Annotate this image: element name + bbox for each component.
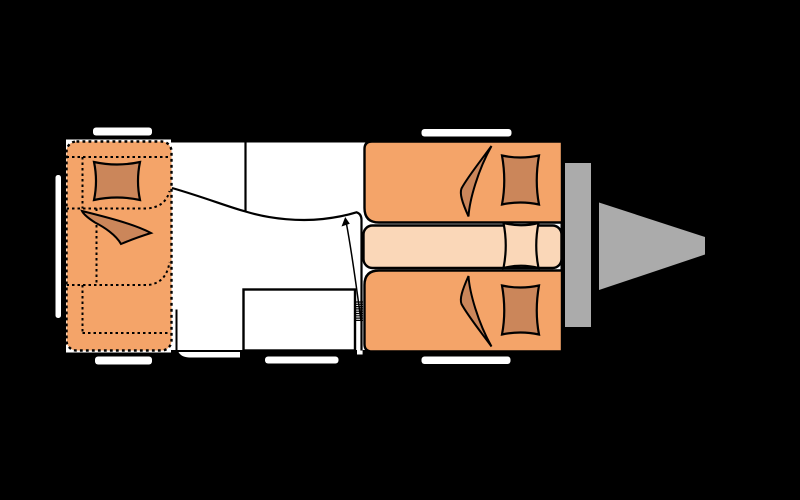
window-bottom-middle [265, 357, 339, 364]
floor-plan-svg [0, 0, 800, 500]
screenshot-root [0, 0, 800, 500]
drawbar-crossmember [565, 163, 591, 327]
pillow-bed-top [502, 156, 539, 205]
dinette-pillow [94, 162, 140, 200]
window-left-side [56, 175, 62, 318]
kitchen-unit [244, 290, 356, 351]
window-bottom-left [95, 357, 152, 365]
window-top-right [422, 129, 512, 137]
service-hatch [179, 352, 241, 358]
window-bottom-right [422, 357, 511, 365]
pillow-bed-center [504, 223, 539, 268]
pillow-bed-bottom [502, 286, 539, 335]
window-top-left [93, 128, 152, 136]
